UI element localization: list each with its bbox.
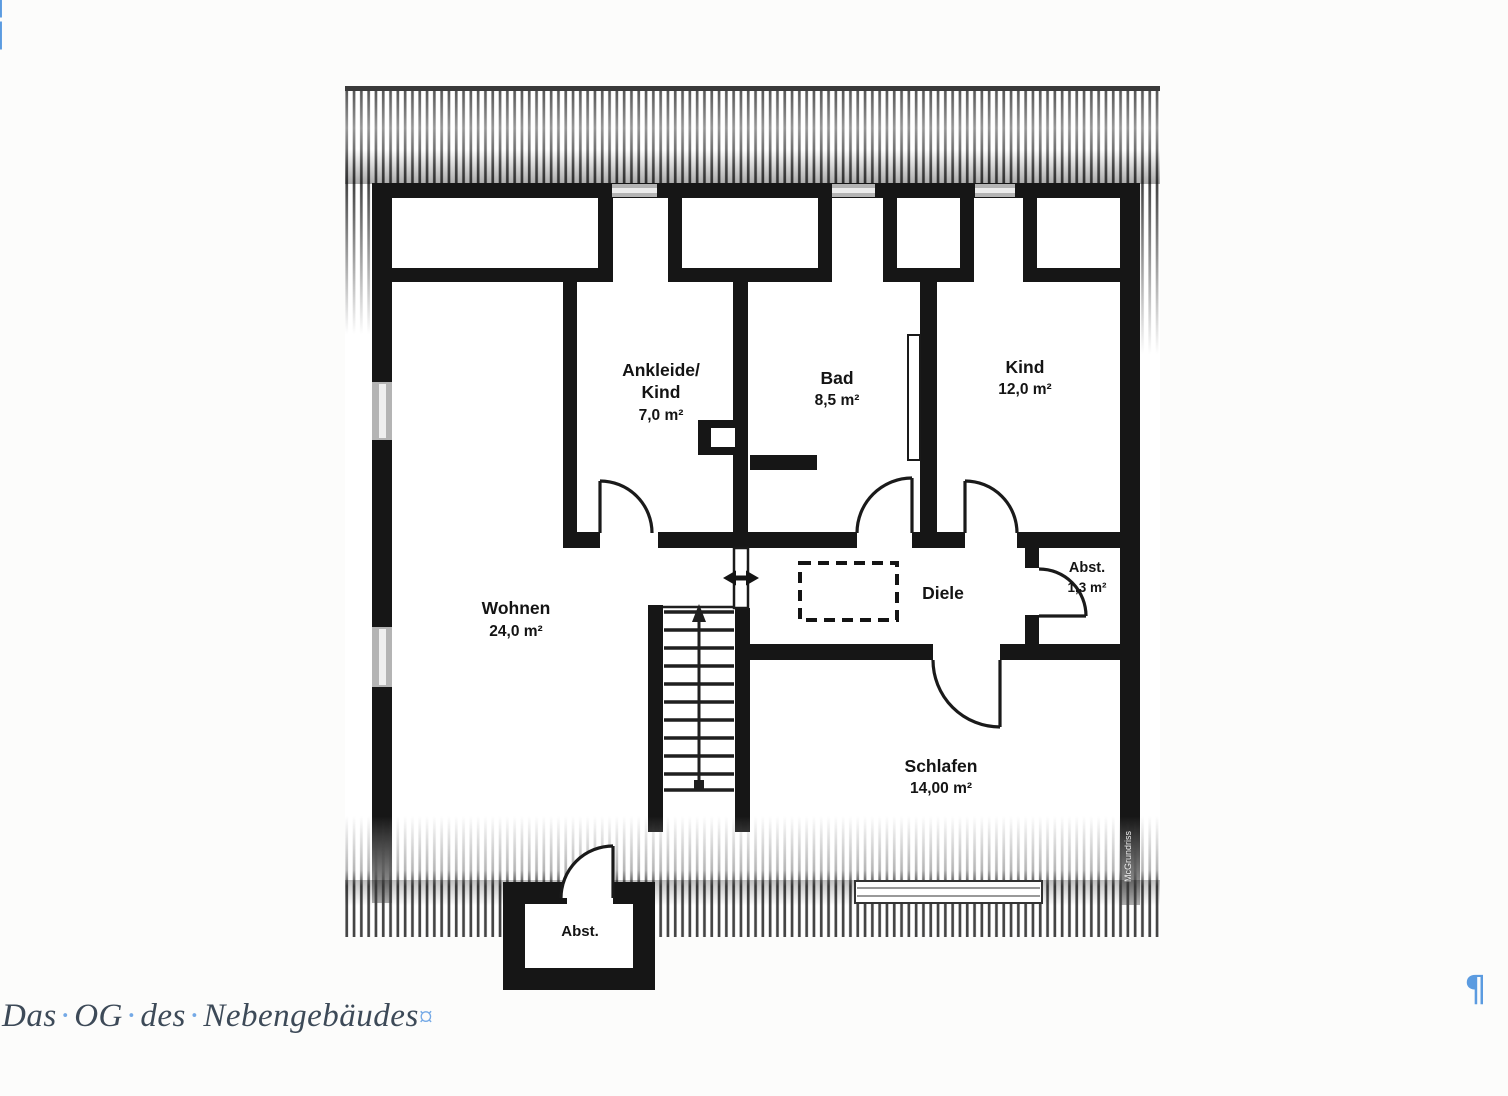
cell-end-mark: ¤ — [419, 1002, 434, 1033]
room-label-abstellraum: Abst. — [1069, 560, 1105, 576]
caption-word: OG — [74, 998, 123, 1034]
room-label-kind: Kind — [1006, 357, 1045, 377]
room-label-abstellraum-unten: Abst. — [561, 923, 599, 940]
roof-window — [832, 184, 875, 197]
room-label-ankleide-line2: Kind — [642, 382, 681, 402]
room-label-schlafen: Schlafen — [905, 756, 978, 776]
room-label-ankleide-line1: Ankleide/ — [622, 360, 700, 380]
roof-window — [612, 184, 657, 197]
space-dot-mark: · — [57, 998, 75, 1034]
room-label-wohnen: Wohnen — [482, 598, 551, 618]
room-area-ankleide: 7,0 m² — [639, 407, 684, 424]
caption-word: Nebengebäudes — [203, 998, 418, 1034]
space-dot-mark: · — [123, 998, 141, 1034]
room-area-schlafen: 14,00 m² — [910, 780, 972, 797]
room-label-diele: Diele — [922, 583, 964, 603]
pilcrow-icon: ¶ — [1464, 972, 1487, 1008]
figure-caption: Das·OG·desNebengebäudes·Nebengebäudes¤ — [2, 998, 433, 1035]
roof-window — [975, 184, 1015, 197]
room-area-bad: 8,5 m² — [815, 392, 860, 409]
space-dot-mark: · — [186, 998, 204, 1034]
bedroom-window — [855, 881, 1042, 903]
bath-duct — [908, 335, 920, 460]
document-page: ¶ ¶ — [0, 0, 1508, 1096]
room-area-abstellraum: 1,3 m² — [1067, 580, 1107, 595]
shaft-opening — [711, 428, 735, 447]
roof-hatching-bottom — [345, 816, 1160, 937]
floor-plan: McGrundriss Ankleide/ Kind 7,0 m² Bad 8,… — [0, 0, 1508, 1096]
room-area-wohnen: 24,0 m² — [489, 623, 542, 640]
side-window — [372, 627, 392, 687]
room-label-bad: Bad — [820, 368, 853, 388]
caption-word: Das — [2, 998, 57, 1034]
caption-word: des — [140, 998, 186, 1034]
plan-paper — [345, 86, 1160, 937]
side-window — [372, 382, 392, 440]
room-area-kind: 12,0 m² — [998, 381, 1051, 398]
watermark-text: McGrundriss — [1123, 830, 1133, 882]
